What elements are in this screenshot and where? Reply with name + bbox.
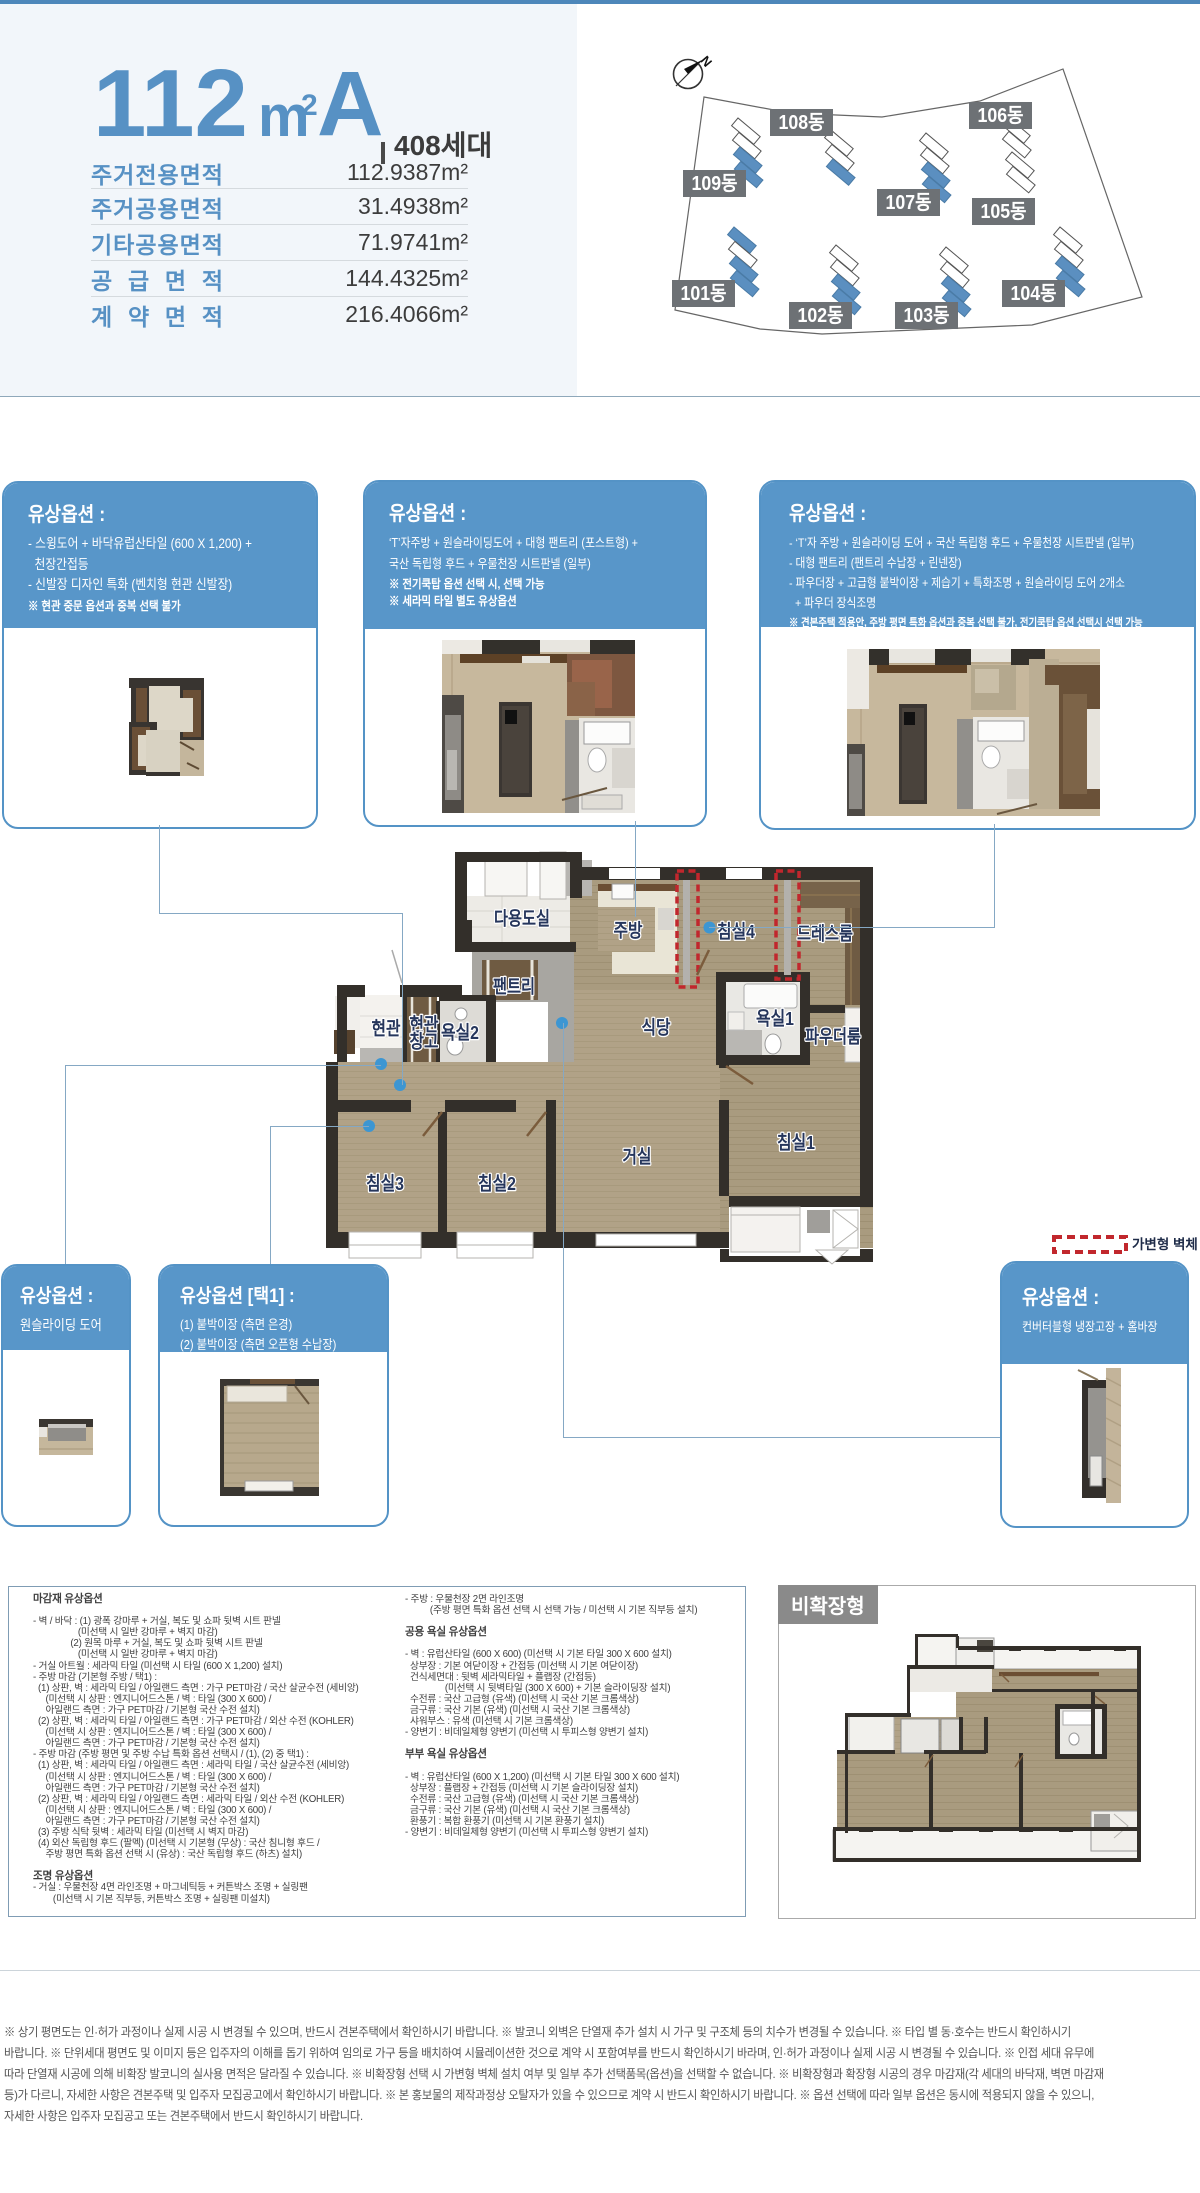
svg-text:창고: 창고 (410, 1031, 439, 1052)
svg-text:침실2: 침실2 (478, 1173, 516, 1194)
svg-text:침실3: 침실3 (366, 1173, 404, 1194)
svg-text:102동: 102동 (798, 305, 844, 327)
svg-text:103동: 103동 (904, 305, 950, 327)
svg-text:식당: 식당 (642, 1017, 671, 1038)
svg-text:거실: 거실 (623, 1146, 652, 1167)
svg-text:팬트리: 팬트리 (493, 976, 535, 997)
svg-text:101동: 101동 (681, 283, 727, 305)
svg-text:107동: 107동 (886, 192, 932, 214)
svg-text:106동: 106동 (978, 105, 1024, 127)
svg-text:침실1: 침실1 (777, 1132, 815, 1153)
svg-text:침실4: 침실4 (717, 921, 756, 942)
svg-text:현관: 현관 (372, 1018, 401, 1039)
svg-text:108동: 108동 (779, 112, 825, 134)
svg-text:파우더룸: 파우더룸 (805, 1026, 861, 1047)
svg-text:욕실1: 욕실1 (756, 1008, 794, 1029)
svg-text:욕실2: 욕실2 (441, 1022, 479, 1043)
svg-text:주방: 주방 (614, 920, 643, 941)
svg-text:105동: 105동 (981, 201, 1027, 223)
svg-text:가변형 벽체: 가변형 벽체 (1132, 1236, 1198, 1252)
svg-text:다용도실: 다용도실 (494, 908, 550, 929)
svg-text:109동: 109동 (692, 173, 738, 195)
svg-text:104동: 104동 (1011, 283, 1057, 305)
